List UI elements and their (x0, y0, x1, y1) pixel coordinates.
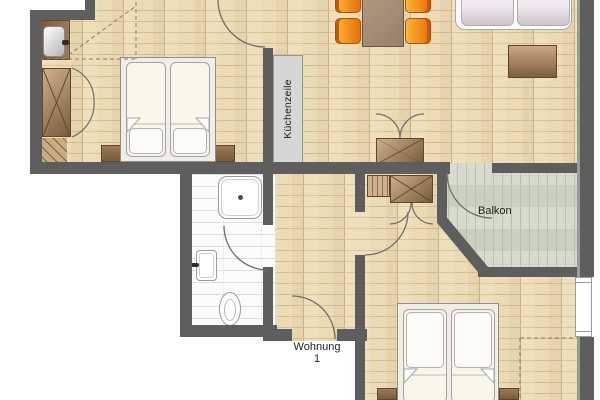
nightstand-lower-right (499, 388, 519, 400)
nightstand-lower-left (377, 388, 397, 400)
wall-top-left-stub (85, 0, 95, 20)
kitchen-unit-label: Küchenzeile (278, 59, 298, 159)
balcony-label: Balkon (478, 205, 528, 217)
kitchen-unit-label-text: Küchenzeile (282, 79, 294, 138)
wall-bath-left (180, 163, 192, 337)
chair-top-right (405, 0, 431, 13)
outside-area (0, 0, 85, 10)
wall-entrance-left (263, 329, 292, 341)
bed-lower-pillow-right (454, 312, 492, 368)
basin-tap-icon (62, 40, 69, 45)
shoe-cabinet (367, 175, 390, 197)
wall-balcony-left (437, 173, 447, 222)
wall-balcony-top (492, 163, 578, 173)
floor-hallway (263, 163, 357, 341)
apartment-label-name: Wohnung (287, 341, 347, 353)
apartment-label: Wohnung 1 (287, 341, 347, 365)
chair-bottom-left (335, 18, 361, 44)
wall-left-outer (30, 10, 42, 174)
sideboard (508, 45, 557, 78)
wall-right-upper (577, 0, 594, 277)
wall-hall-upper (355, 174, 365, 212)
wall-right-lower (577, 337, 594, 400)
apartment-label-number: 1 (287, 353, 347, 365)
wardrobe-upper-bedroom (42, 68, 71, 137)
floor-plan: Küchenzeile Balkon Wohnung 1 (0, 0, 600, 400)
chair-top-left (335, 0, 361, 13)
wardrobe-hall (390, 175, 433, 203)
sofa-cushion-right (517, 0, 570, 26)
wall-kitchen-bath-vertical (263, 48, 273, 225)
wall-hall-lower (355, 255, 365, 400)
bed-lower-pillow-left (406, 312, 444, 368)
window-tick-bottom (576, 331, 591, 332)
hatched-cut-area (38, 138, 67, 162)
toilet-bowl-inner (224, 299, 236, 321)
bed-upper-pillow-right (173, 128, 207, 154)
chair-bottom-right (405, 18, 431, 44)
sink-inner (199, 253, 214, 278)
sofa-cushion-left (461, 0, 514, 26)
bed-upper-pillow-left (129, 128, 163, 154)
window-tick-top (576, 282, 591, 283)
shower-drain-icon (238, 195, 243, 200)
balcony-label-text: Balkon (478, 205, 512, 217)
dining-table (362, 0, 404, 47)
wall-mid-horizontal (30, 162, 450, 174)
window-lower-bedroom (575, 277, 592, 337)
wall-balcony-bottom (478, 267, 578, 277)
cupboard-living-room (376, 138, 424, 165)
